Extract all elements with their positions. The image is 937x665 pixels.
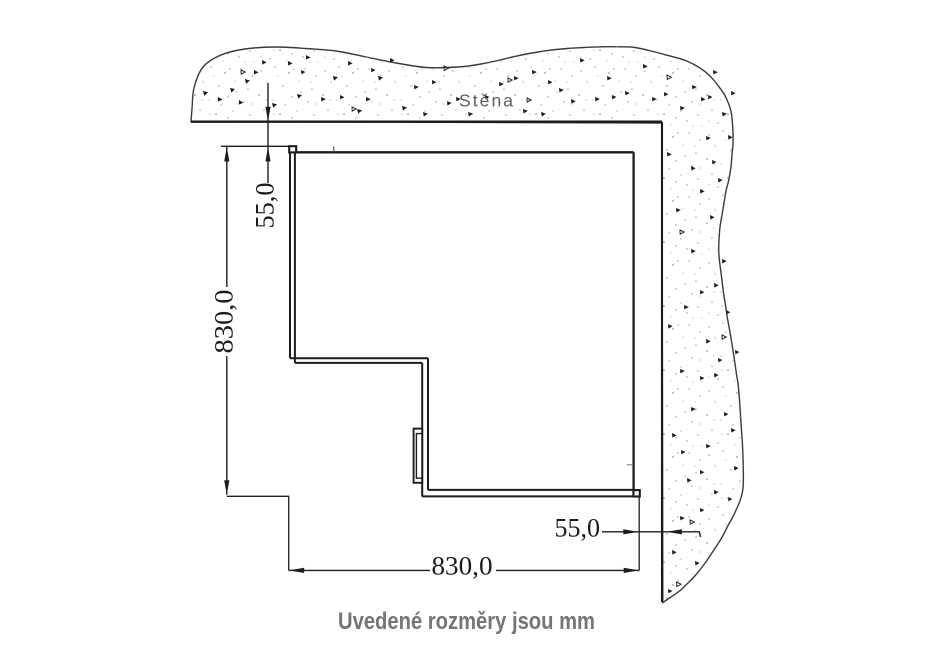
svg-text:Stěna: Stěna <box>459 91 513 111</box>
svg-text:Uvedené rozměry jsou mm: Uvedené rozměry jsou mm <box>338 608 595 635</box>
svg-text:55,0: 55,0 <box>555 514 601 543</box>
svg-text:55,0: 55,0 <box>251 183 280 229</box>
svg-text:830,0: 830,0 <box>210 290 239 354</box>
svg-text:830,0: 830,0 <box>432 552 493 581</box>
